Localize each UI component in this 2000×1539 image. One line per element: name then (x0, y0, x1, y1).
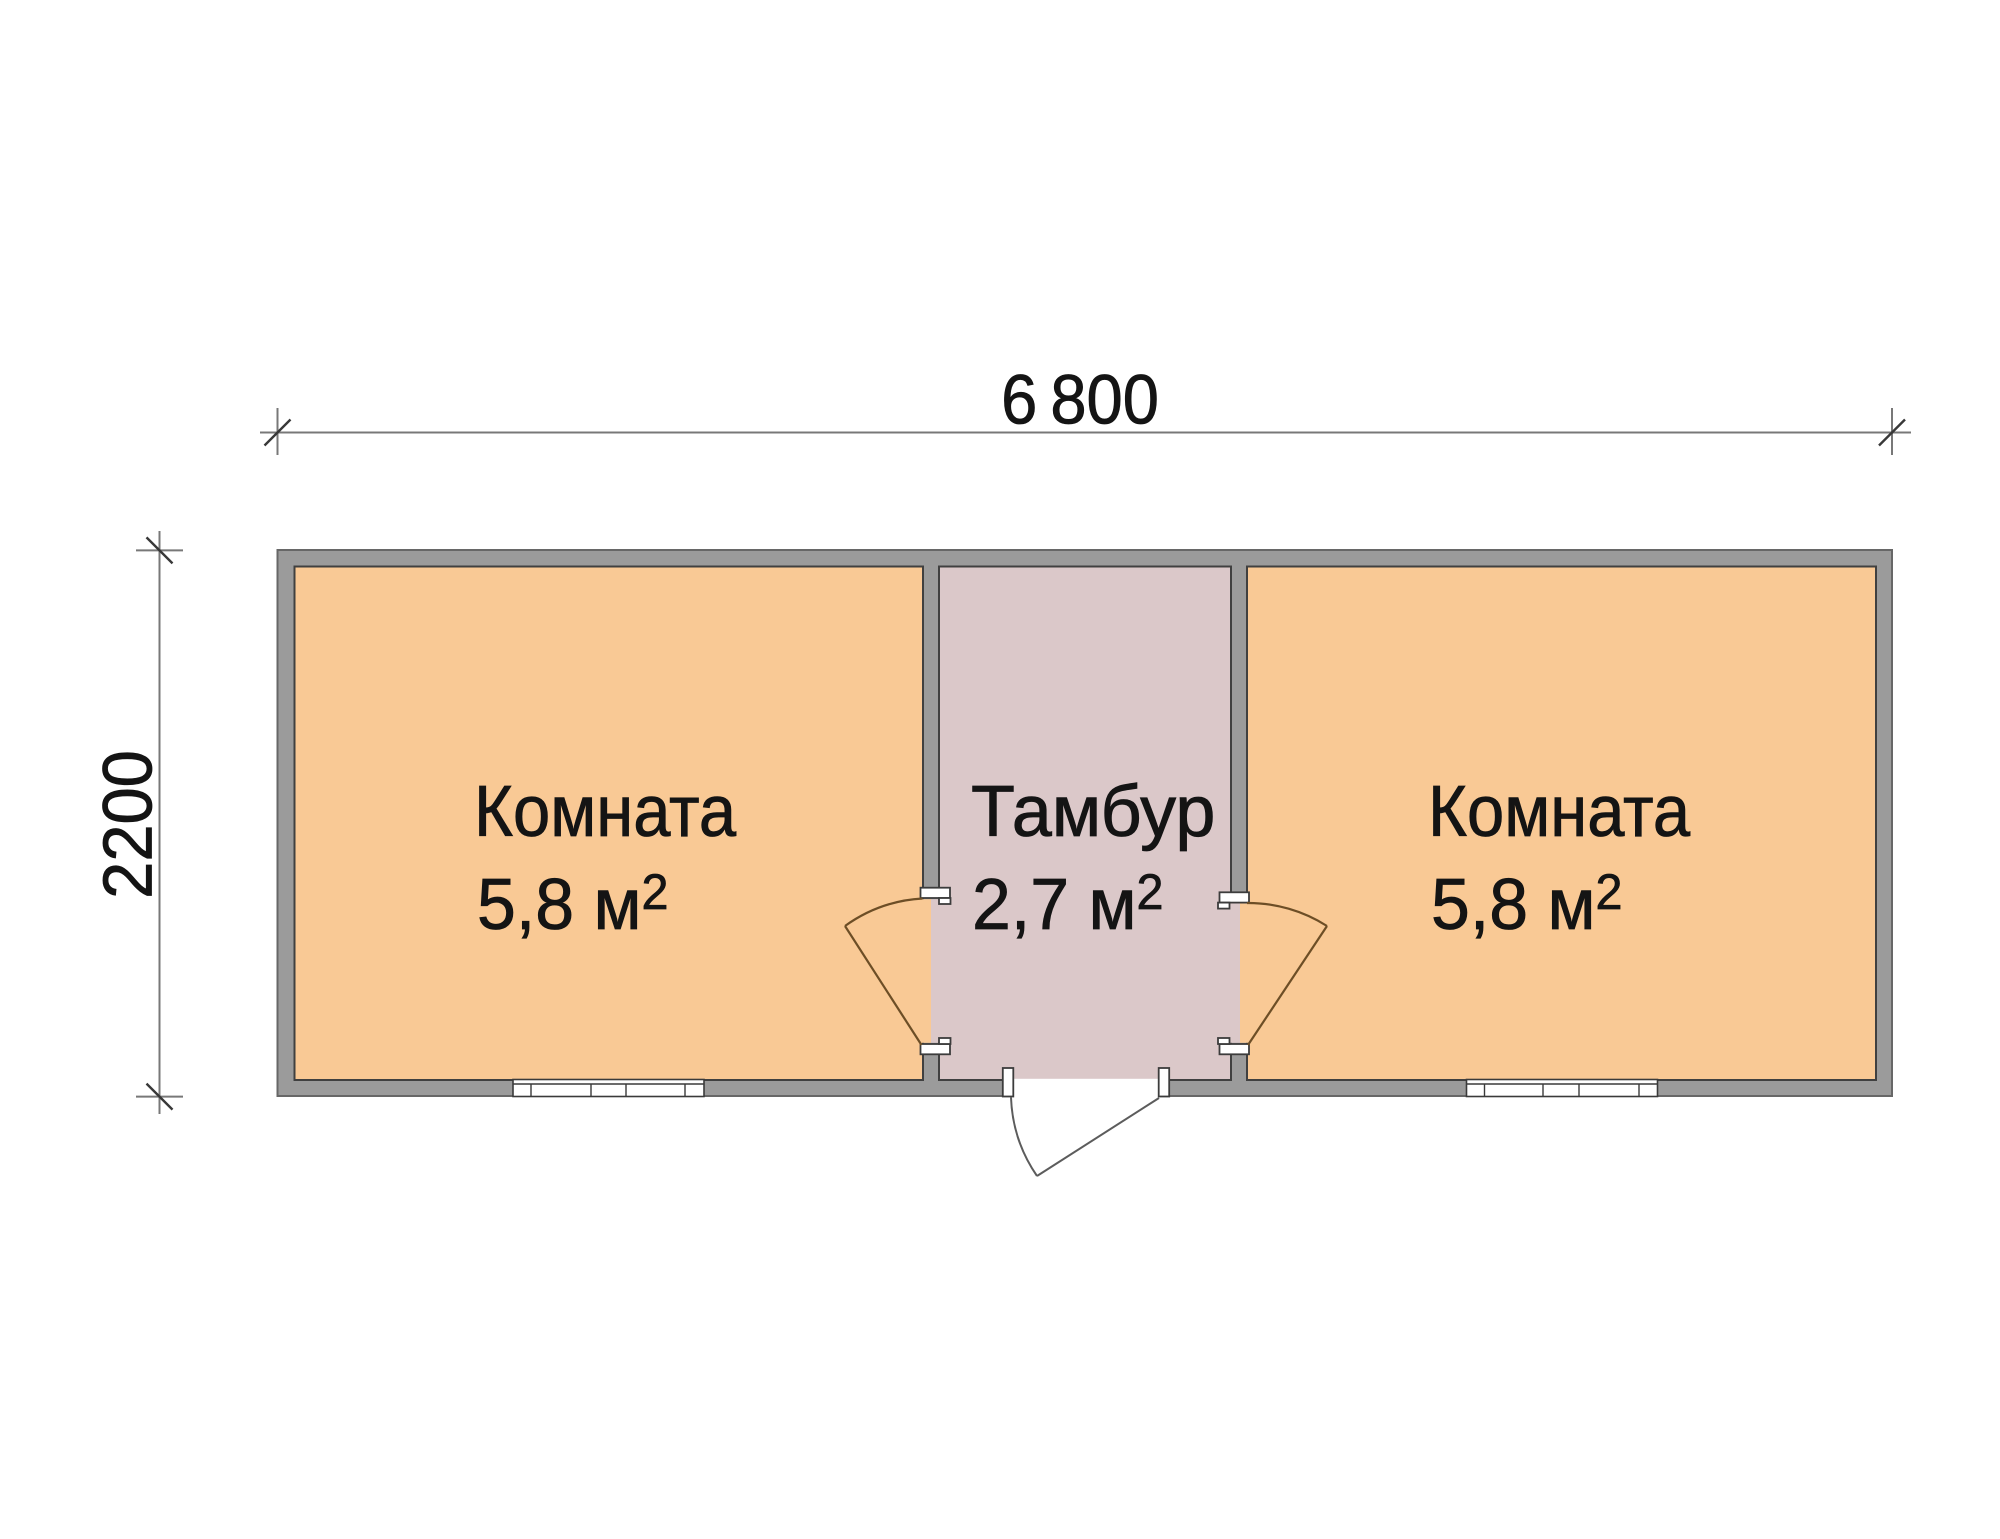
svg-text:5,8 м2: 5,8 м2 (477, 864, 668, 945)
svg-text:6 800: 6 800 (1001, 361, 1159, 439)
svg-text:Тамбур: Тамбур (971, 772, 1215, 852)
svg-text:2,7 м2: 2,7 м2 (972, 864, 1163, 945)
svg-text:Комната: Комната (474, 771, 736, 852)
svg-text:5,8 м2: 5,8 м2 (1431, 864, 1622, 945)
svg-text:2200: 2200 (88, 750, 167, 899)
svg-text:Комната: Комната (1428, 771, 1690, 852)
